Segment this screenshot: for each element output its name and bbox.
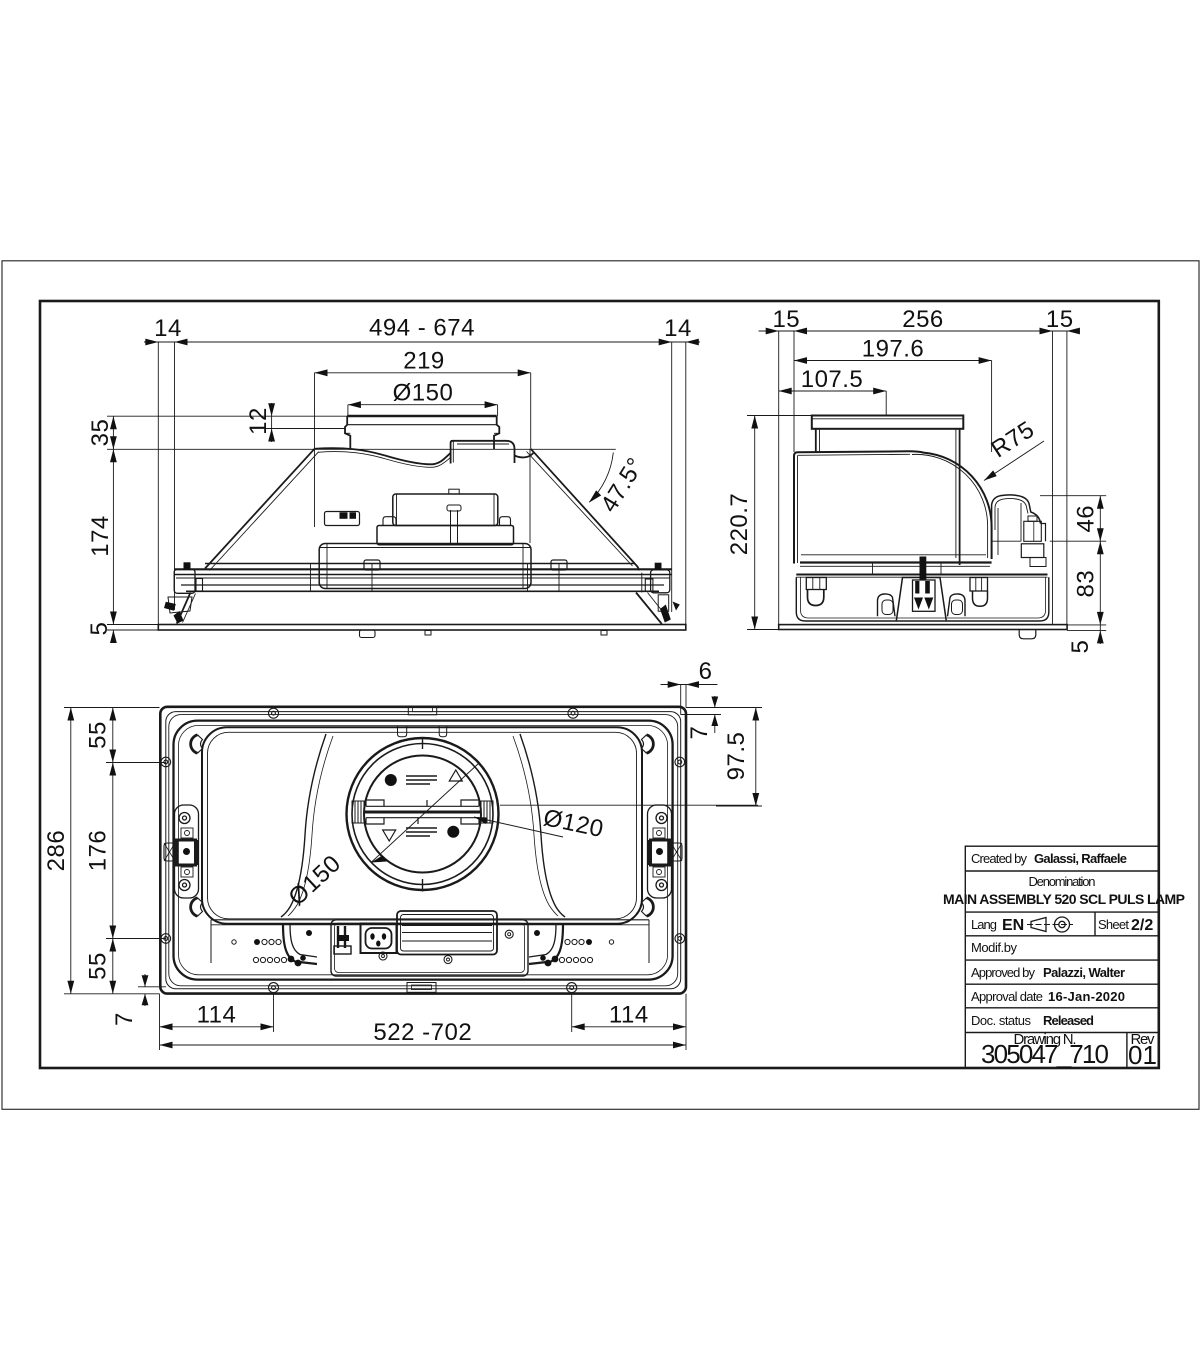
svg-text:286: 286	[43, 830, 70, 872]
svg-text:6: 6	[699, 658, 713, 685]
svg-text:15: 15	[772, 306, 800, 333]
svg-text:114: 114	[609, 1002, 649, 1029]
svg-text:5: 5	[1067, 640, 1094, 654]
svg-text:114: 114	[197, 1002, 237, 1029]
svg-text:Approved by: Approved by	[971, 965, 1036, 980]
svg-text:Sheet: Sheet	[1098, 917, 1129, 932]
svg-text:12: 12	[245, 407, 272, 435]
svg-text:Lang: Lang	[971, 917, 997, 932]
svg-text:46: 46	[1073, 505, 1100, 533]
svg-text:Palazzi, Walter: Palazzi, Walter	[1043, 965, 1125, 980]
svg-text:197.6: 197.6	[862, 336, 925, 363]
svg-text:16-Jan-2020: 16-Jan-2020	[1048, 989, 1125, 1004]
svg-text:83: 83	[1073, 570, 1100, 598]
svg-text:97.5: 97.5	[723, 732, 750, 781]
svg-text:176: 176	[85, 830, 112, 872]
svg-text:174: 174	[87, 515, 114, 557]
svg-text:7: 7	[686, 726, 713, 740]
svg-text:Denomination: Denomination	[1029, 874, 1096, 889]
svg-text:Doc. status: Doc. status	[971, 1013, 1032, 1028]
svg-text:Ø150: Ø150	[393, 380, 454, 407]
svg-text:55: 55	[85, 721, 112, 749]
svg-text:15: 15	[1046, 306, 1074, 333]
svg-text:494 - 674: 494 - 674	[369, 315, 475, 342]
svg-text:35: 35	[87, 419, 114, 447]
svg-text:Galassi, Raffaele: Galassi, Raffaele	[1034, 851, 1127, 866]
svg-text:305047_710: 305047_710	[981, 1039, 1109, 1069]
svg-text:Modif.by: Modif.by	[971, 940, 1018, 955]
svg-text:219: 219	[403, 348, 445, 375]
svg-text:Created by: Created by	[971, 851, 1028, 866]
svg-text:107.5: 107.5	[801, 366, 864, 393]
svg-text:2/2: 2/2	[1131, 917, 1153, 934]
svg-text:14: 14	[664, 315, 692, 342]
svg-text:MAIN ASSEMBLY 520 SCL PULS LAM: MAIN ASSEMBLY 520 SCL PULS LAMP	[943, 891, 1185, 907]
svg-text:5: 5	[86, 622, 113, 636]
svg-text:EN: EN	[1002, 917, 1024, 934]
svg-text:14: 14	[154, 315, 182, 342]
svg-text:55: 55	[85, 952, 112, 980]
svg-text:7: 7	[111, 1012, 138, 1026]
svg-text:220.7: 220.7	[726, 493, 753, 556]
svg-text:Released: Released	[1043, 1013, 1094, 1028]
svg-text:Approval date: Approval date	[971, 989, 1043, 1004]
svg-text:522 -702: 522 -702	[373, 1019, 472, 1046]
svg-text:256: 256	[902, 306, 944, 333]
svg-text:01: 01	[1128, 1040, 1157, 1070]
